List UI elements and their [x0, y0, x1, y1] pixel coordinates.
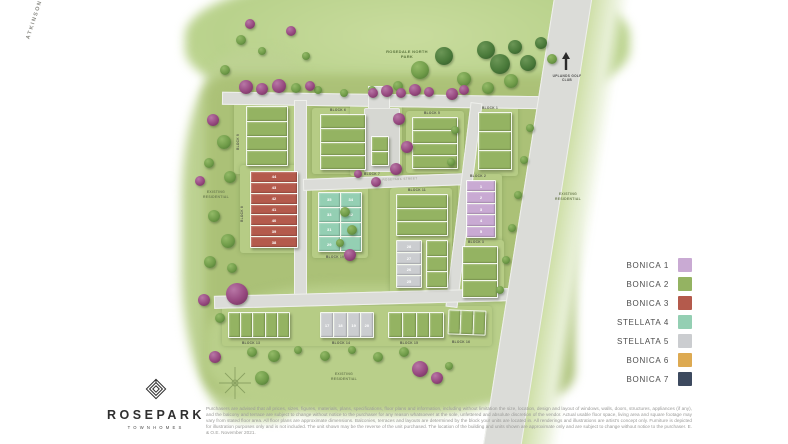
unit — [413, 144, 457, 156]
tree-icon — [340, 207, 350, 217]
site-plan-page: BLOCK 944434241403938BLOCK 8BLOCK 6BLOCK… — [0, 0, 788, 444]
unit-28: 28 — [397, 241, 421, 252]
park-label: ROSEDALE NORTH PARK — [384, 49, 430, 60]
logo-name: ROSEPARK — [100, 408, 212, 422]
flowering-tree-icon — [412, 361, 428, 377]
tree-icon — [336, 239, 344, 247]
block-label-b3: BLOCK 3 — [468, 240, 484, 244]
block-b7 — [371, 136, 389, 166]
north-arrow-icon — [561, 52, 571, 75]
flowering-tree-icon — [209, 351, 221, 363]
legend-label: STELLATA 5 — [617, 337, 669, 346]
tree-icon — [247, 347, 257, 357]
legend-swatch — [678, 258, 692, 272]
existing-residential-left-label: EXISTING RESIDENTIAL — [198, 190, 234, 199]
unit — [479, 113, 511, 131]
unit-4: 4 — [467, 215, 495, 225]
flowering-tree-icon — [272, 79, 286, 93]
flowering-tree-icon — [424, 87, 434, 97]
tree-icon — [508, 40, 522, 54]
tree-icon — [482, 82, 494, 94]
tree-icon — [258, 47, 266, 55]
unit-34: 34 — [341, 193, 362, 207]
block-b8: 44434241403938 — [250, 171, 298, 248]
block-b1 — [478, 112, 512, 170]
unit — [417, 313, 430, 337]
block-label-b10: BLOCK 10 — [326, 255, 344, 259]
logo-tagline: TOWNHOMES — [100, 425, 212, 430]
legend-item: STELLATA 4 — [592, 315, 692, 329]
flowering-tree-icon — [239, 80, 253, 94]
legend-item: STELLATA 5 — [592, 334, 692, 348]
tree-icon — [320, 351, 330, 361]
flowering-tree-icon — [195, 176, 205, 186]
unit-25: 25 — [397, 276, 421, 287]
flowering-tree-icon — [390, 163, 402, 175]
block-label-b11: BLOCK 11 — [408, 188, 426, 192]
unit-5: 5 — [467, 227, 495, 237]
tree-icon — [204, 158, 214, 168]
tree-icon — [526, 124, 534, 132]
flowering-tree-icon — [256, 83, 268, 95]
tree-icon — [411, 61, 429, 79]
unit — [321, 143, 365, 156]
unit — [479, 151, 511, 169]
unit — [397, 195, 447, 208]
tree-icon — [220, 65, 230, 75]
unit — [247, 151, 287, 165]
unit — [403, 313, 416, 337]
block-b9 — [246, 106, 288, 166]
block-label-b16: BLOCK 16 — [452, 340, 470, 344]
rosepark-logo: ROSEPARK TOWNHOMES — [100, 378, 212, 430]
tree-icon — [217, 135, 231, 149]
legend-item: BONICA 3 — [592, 296, 692, 310]
tree-icon — [504, 74, 518, 88]
legend-swatch — [678, 315, 692, 329]
flowering-tree-icon — [446, 88, 458, 100]
tree-icon — [208, 210, 220, 222]
block-b11s — [426, 240, 448, 288]
tree-icon — [314, 86, 322, 94]
legend: BONICA 1 BONICA 2 BONICA 3 STELLATA 4 ST… — [592, 258, 692, 391]
legend-label: BONICA 3 — [626, 299, 669, 308]
flowering-tree-icon — [431, 372, 443, 384]
legend-item: BONICA 7 — [592, 372, 692, 386]
unit-1: 1 — [467, 181, 495, 191]
block-label-b6: BLOCK 6 — [330, 108, 346, 112]
legend-label: BONICA 2 — [626, 280, 669, 289]
rosepark-logo-icon — [100, 378, 212, 405]
tree-icon — [547, 54, 557, 64]
flowering-tree-icon — [393, 113, 405, 125]
tree-icon — [291, 83, 301, 93]
block-label-b7: BLOCK 7 — [364, 172, 380, 176]
unit — [321, 129, 365, 142]
legend-label: BONICA 1 — [626, 261, 669, 270]
tree-icon — [490, 54, 510, 74]
legend-item: BONICA 6 — [592, 353, 692, 367]
block-b6 — [320, 114, 366, 170]
unit — [372, 137, 388, 151]
unit-39: 39 — [251, 226, 297, 236]
tree-icon — [227, 263, 237, 273]
tree-icon — [348, 346, 356, 354]
unit — [253, 313, 264, 337]
flowering-tree-icon — [286, 26, 296, 36]
unit — [266, 313, 277, 337]
legend-swatch — [678, 353, 692, 367]
tree-icon — [302, 52, 310, 60]
tree-icon — [294, 346, 302, 354]
unit-17: 17 — [321, 313, 333, 337]
unit — [430, 313, 443, 337]
unit — [229, 313, 240, 337]
flowering-tree-icon — [368, 88, 378, 98]
existing-residential-bottom-label: EXISTING RESIDENTIAL — [326, 372, 362, 381]
flowering-tree-icon — [354, 170, 362, 178]
tree-icon — [435, 47, 453, 65]
flowering-tree-icon — [401, 141, 413, 153]
tree-icon — [508, 224, 516, 232]
tree-icon — [496, 286, 504, 294]
block-b13 — [228, 312, 290, 338]
unit — [449, 310, 461, 333]
block-label-b13: BLOCK 13 — [242, 341, 260, 345]
legend-label: STELLATA 4 — [617, 318, 669, 327]
block-label-b8: BLOCK 8 — [240, 206, 244, 222]
block-b15 — [388, 312, 444, 338]
unit — [397, 209, 447, 222]
tree-icon — [502, 256, 510, 264]
legend-swatch — [678, 334, 692, 348]
unit — [427, 241, 447, 256]
tree-icon — [204, 256, 216, 268]
legend-swatch — [678, 277, 692, 291]
block-label-b5: BLOCK 5 — [424, 111, 440, 115]
block-b16 — [448, 309, 487, 335]
unit-2: 2 — [467, 192, 495, 202]
tree-icon — [451, 126, 459, 134]
tree-icon — [457, 72, 471, 86]
unit-18: 18 — [334, 313, 346, 337]
unit-3: 3 — [467, 204, 495, 214]
unit — [241, 313, 252, 337]
flowering-tree-icon — [396, 88, 406, 98]
block-label-b1: BLOCK 1 — [482, 106, 498, 110]
unit-35: 35 — [319, 193, 340, 207]
block-b11g: 28272625 — [396, 240, 422, 288]
flowering-tree-icon — [226, 283, 248, 305]
block-b2: 12345 — [466, 180, 496, 238]
unit-42: 42 — [251, 194, 297, 204]
unit — [321, 115, 365, 128]
tree-icon — [221, 234, 235, 248]
tree-icon — [268, 350, 280, 362]
tree-icon — [535, 37, 547, 49]
legend-swatch — [678, 372, 692, 386]
block-b3 — [462, 246, 498, 298]
unit-43: 43 — [251, 183, 297, 193]
unit-44: 44 — [251, 172, 297, 182]
unit — [247, 107, 287, 121]
golf-club-label: UPLANDS GOLF CLUB — [550, 74, 584, 83]
unit — [247, 122, 287, 136]
unit — [413, 131, 457, 143]
flowering-tree-icon — [409, 84, 421, 96]
unit-40: 40 — [251, 215, 297, 225]
unit — [321, 156, 365, 169]
tree-icon — [445, 362, 453, 370]
tree-icon — [373, 352, 383, 362]
unit-20: 20 — [361, 313, 373, 337]
legend-item: BONICA 2 — [592, 277, 692, 291]
tree-icon — [514, 191, 522, 199]
unit — [372, 152, 388, 166]
tree-icon — [255, 371, 269, 385]
unit — [427, 272, 447, 287]
block-label-b2: BLOCK 2 — [470, 174, 486, 178]
unit — [473, 311, 485, 334]
unit-19: 19 — [348, 313, 360, 337]
unit-38: 38 — [251, 237, 297, 247]
flowering-tree-icon — [305, 81, 315, 91]
tree-icon — [520, 156, 528, 164]
existing-residential-right-label: EXISTING RESIDENTIAL — [550, 192, 586, 201]
unit — [479, 132, 511, 150]
block-b11 — [396, 194, 448, 236]
unit — [278, 313, 289, 337]
flowering-tree-icon — [381, 85, 393, 97]
unit — [463, 264, 497, 280]
flowering-tree-icon — [198, 294, 210, 306]
tree-icon — [520, 55, 536, 71]
legend-label: BONICA 6 — [626, 356, 669, 365]
unit-26: 26 — [397, 265, 421, 276]
disclaimer-text: Purchasers are advised that all prices, … — [206, 406, 692, 435]
legend-swatch — [678, 296, 692, 310]
tree-icon — [224, 171, 236, 183]
tree-icon — [340, 89, 348, 97]
unit-41: 41 — [251, 205, 297, 215]
block-b14: 17181920 — [320, 312, 374, 338]
flowering-tree-icon — [245, 19, 255, 29]
flowering-tree-icon — [459, 85, 469, 95]
unit-27: 27 — [397, 253, 421, 264]
unit — [463, 281, 497, 297]
tree-icon — [236, 35, 246, 45]
unit-33: 33 — [319, 208, 340, 222]
tree-icon — [447, 158, 455, 166]
unit-31: 31 — [319, 223, 340, 237]
block-label-b9: BLOCK 9 — [236, 134, 240, 150]
block-label-b14: BLOCK 14 — [332, 341, 350, 345]
legend-item: BONICA 1 — [592, 258, 692, 272]
legend-label: BONICA 7 — [626, 375, 669, 384]
block-label-b15: BLOCK 15 — [400, 341, 418, 345]
tree-icon — [399, 347, 409, 357]
unit — [461, 311, 473, 334]
compass-rose-icon — [218, 366, 252, 405]
unit — [463, 247, 497, 263]
tree-icon — [347, 225, 357, 235]
unit — [247, 137, 287, 151]
tree-icon — [215, 313, 225, 323]
flowering-tree-icon — [207, 114, 219, 126]
flowering-tree-icon — [344, 249, 356, 261]
unit — [389, 313, 402, 337]
unit — [397, 222, 447, 235]
unit — [427, 257, 447, 272]
